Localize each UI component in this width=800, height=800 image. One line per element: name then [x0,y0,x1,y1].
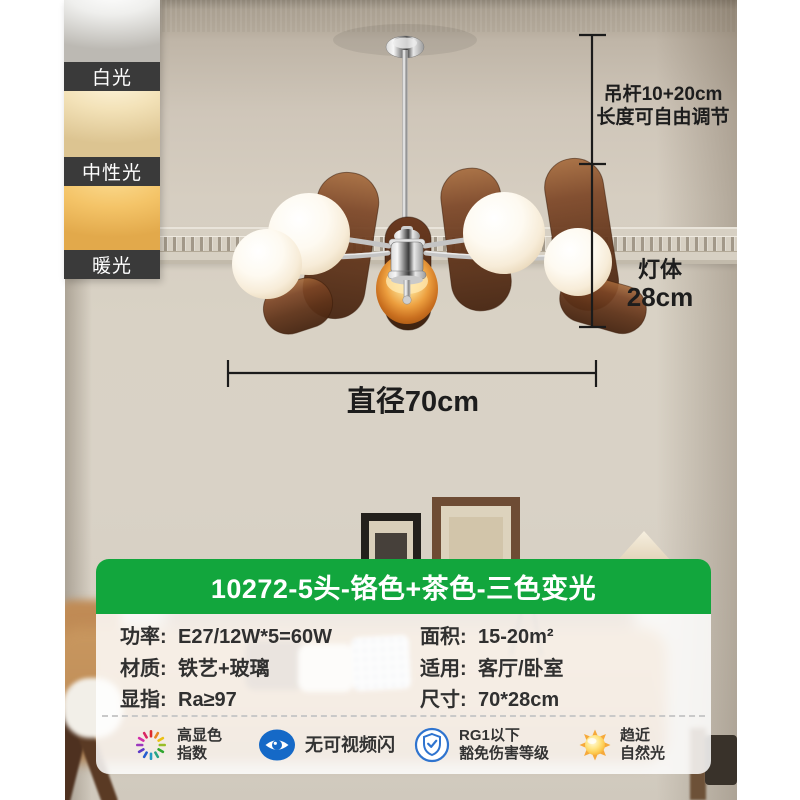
feature-natural-light: 趋近 自然光 [579,722,665,768]
white-light-swatch [64,0,160,62]
feature-text: RG1以下 豁免伤害等级 [459,727,549,763]
neutral-light-label: 中性光 [64,157,160,186]
spec-value: Ra≥97 [178,689,237,711]
feature-line1: RG1以下 [459,727,549,745]
feature-line1: 无可视频闪 [305,736,395,754]
spec-body: 功率:E27/12W*5=60W 材质:铁艺+玻璃 显指:Ra≥97 面积:15… [96,614,711,774]
feature-text: 趋近 自然光 [620,727,665,763]
spec-rooms: 适用:客厅/卧室 [420,658,564,680]
spec-label: 面积: [420,626,478,648]
dashed-divider [102,715,705,717]
shield-check-icon [414,726,450,764]
product-spec-card: 10272-5头-铬色+茶色-三色变光 功率:E27/12W*5=60W 材质:… [96,559,711,774]
spec-value: 70*28cm [478,689,559,711]
spec-value: E27/12W*5=60W [178,626,332,648]
spec-label: 显指: [120,689,178,711]
spec-cri: 显指:Ra≥97 [120,689,237,711]
spec-value: 客厅/卧室 [478,658,564,680]
body-height-annotation: 灯体 28cm [614,257,706,312]
spec-value: 15-20m² [478,626,554,648]
feature-line1: 趋近 [620,727,665,745]
feature-text: 无可视频闪 [305,736,395,754]
feature-rg1: RG1以下 豁免伤害等级 [414,722,549,768]
eye-icon [258,728,296,762]
spec-material: 材质:铁艺+玻璃 [120,658,270,680]
feature-text: 高显色 指数 [177,727,222,763]
white-light-label: 白光 [64,62,160,91]
product-title: 10272-5头-铬色+茶色-三色变光 [96,559,711,614]
spec-label: 功率: [120,626,178,648]
body-height-value: 28cm [614,283,706,312]
rod-length-line2: 长度可自由调节 [593,106,733,129]
neutral-light-swatch [64,91,160,157]
rod-length-annotation: 吊杆10+20cm 长度可自由调节 [593,83,733,129]
spec-label: 尺寸: [420,689,478,711]
sun-icon [579,729,611,761]
diameter-annotation: 直径70cm [343,378,483,420]
warm-light-swatch [64,186,160,250]
spec-area: 面积:15-20m² [420,626,554,648]
spec-label: 适用: [420,658,478,680]
product-infographic: 吊杆10+20cm 长度可自由调节 灯体 28cm 直径70cm 白光 中性光 … [0,0,800,800]
color-wheel-icon [134,728,168,762]
feature-line2: 指数 [177,745,222,763]
feature-line2: 豁免伤害等级 [459,745,549,763]
feature-no-flicker: 无可视频闪 [258,722,395,768]
body-height-label: 灯体 [614,257,706,283]
spec-size: 尺寸:70*28cm [420,689,559,711]
spec-label: 材质: [120,658,178,680]
feature-line1: 高显色 [177,727,222,745]
feature-line2: 自然光 [620,745,665,763]
feature-row: 高显色 指数 无可视频闪 [96,722,711,772]
spec-power: 功率:E27/12W*5=60W [120,626,332,648]
warm-light-label: 暖光 [64,250,160,279]
rod-length-line1: 吊杆10+20cm [593,83,733,106]
light-mode-swatches: 白光 中性光 暖光 [64,0,160,279]
spec-value: 铁艺+玻璃 [178,658,270,680]
feature-high-cri: 高显色 指数 [134,722,222,768]
